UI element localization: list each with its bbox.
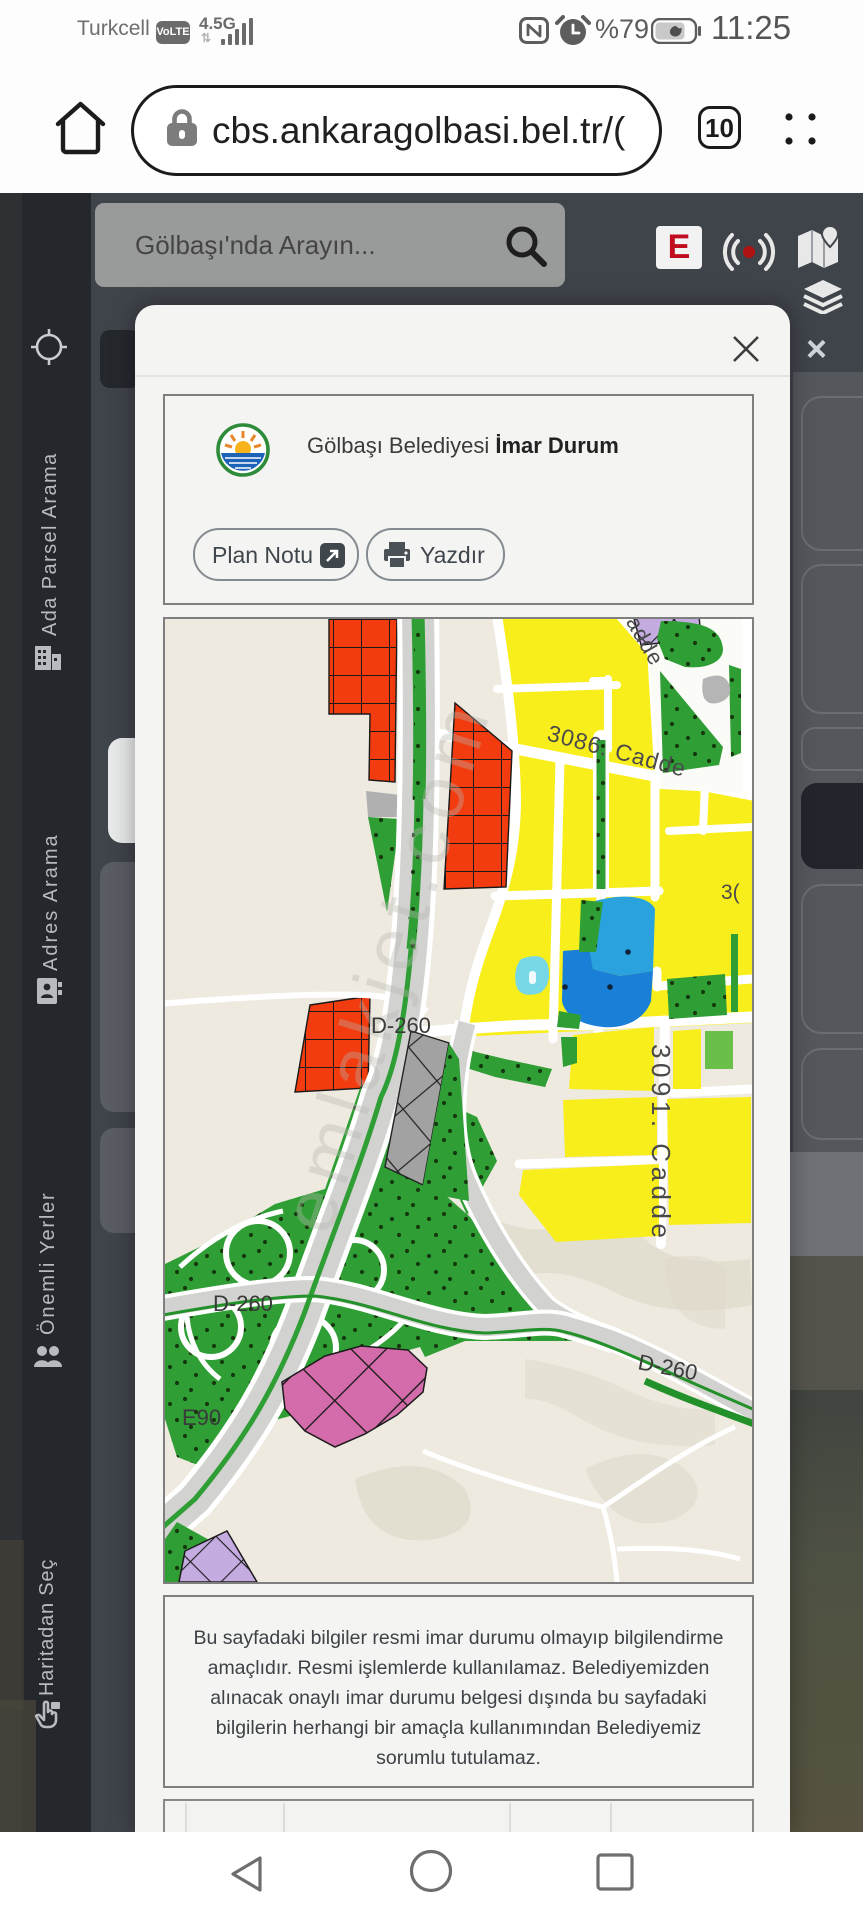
svg-text:D-260: D-260 [213, 1291, 273, 1316]
svg-text:D-260: D-260 [371, 1013, 431, 1038]
svg-text:3091. Cadde: 3091. Cadde [646, 1044, 676, 1242]
svg-text:E90: E90 [182, 1405, 221, 1430]
svg-text:3(: 3( [721, 881, 740, 904]
